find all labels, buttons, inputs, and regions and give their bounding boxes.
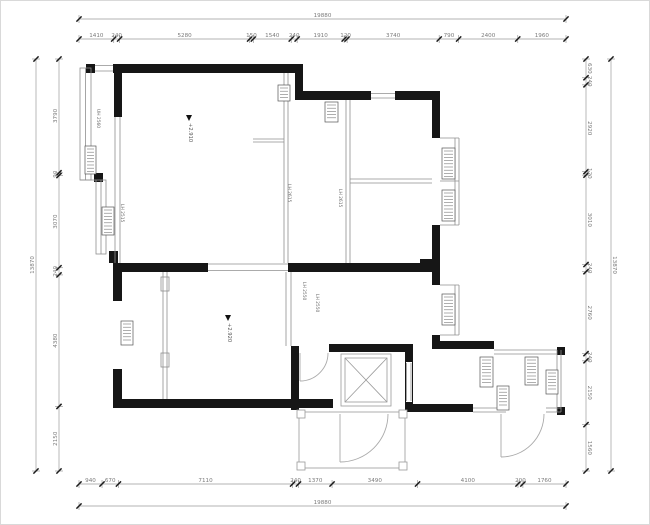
dim-segment-value: 3740 — [386, 33, 401, 39]
dimension-chain-bottom: 9406707110240137034904100200176019880 — [76, 478, 568, 510]
window-tag — [525, 357, 538, 385]
elevator-shaft — [341, 354, 391, 406]
dim-segment-value: 240 — [53, 266, 59, 277]
dimension-chain-right: 6302402920120301024027602402150156013870 — [582, 56, 617, 473]
window-tag — [121, 321, 133, 345]
dim-total-value: 19880 — [314, 500, 332, 506]
height-label: UH 2560 — [95, 109, 101, 128]
dim-segment-value: 940 — [85, 478, 96, 484]
window-tag — [480, 357, 493, 387]
dim-segment-value: 4380 — [53, 333, 59, 348]
floorplan-canvas: UH 2560LH 2515LH 2615LH 2615LH 2550LH 25… — [0, 0, 650, 525]
dim-segment-value: 240 — [586, 352, 592, 363]
height-label: LH 2515 — [119, 204, 125, 223]
dim-total-value: 13870 — [611, 256, 617, 274]
window-tag — [102, 207, 114, 235]
dimension-chain-left: 37909030702404380215013870 — [30, 56, 63, 473]
dim-segment-value: 670 — [105, 478, 116, 484]
window-tag — [497, 386, 509, 410]
elevator-x-icon — [345, 358, 387, 402]
height-label: LH 2550 — [314, 294, 320, 313]
balcony-door — [501, 414, 544, 457]
dim-segment-value: 2150 — [53, 431, 59, 446]
entry-door — [340, 414, 388, 462]
height-label: LH 2615 — [286, 184, 292, 203]
dim-segment-value: 1960 — [535, 33, 550, 39]
dim-segment-value: 240 — [290, 478, 301, 484]
dim-segment-value: 790 — [444, 33, 455, 39]
dim-segment-value: 2400 — [481, 33, 496, 39]
floorplan-drawing: UH 2560LH 2515LH 2615LH 2615LH 2550LH 25… — [1, 1, 650, 525]
window-tag — [278, 85, 290, 101]
window-tag — [546, 370, 558, 394]
dim-segment-value: 120 — [340, 33, 351, 39]
window-tag — [85, 146, 96, 174]
dim-segment-value: 240 — [586, 76, 592, 87]
level-marker: +2.920 — [226, 323, 232, 342]
dim-segment-value: 5280 — [177, 33, 192, 39]
hall-door — [300, 353, 328, 381]
dim-segment-value: 1410 — [89, 33, 104, 39]
height-label: LH 2615 — [337, 189, 343, 208]
dim-segment-value: 3010 — [586, 213, 592, 228]
dim-segment-value: 3790 — [53, 108, 59, 123]
level-marker: +2.910 — [187, 123, 193, 142]
dim-segment-value: 1910 — [314, 33, 329, 39]
dim-segment-value: 240 — [586, 263, 592, 274]
dim-segment-value: 240 — [289, 33, 300, 39]
window-tag — [442, 190, 455, 221]
dim-segment-value: 200 — [515, 478, 526, 484]
dimension-chain-top: 1410240528015015402401910120374079024001… — [76, 13, 568, 43]
dim-segment-value: 1560 — [586, 441, 592, 456]
dim-segment-value: 1370 — [308, 478, 323, 484]
dim-segment-value: 3490 — [368, 478, 383, 484]
height-label: LH 2550 — [301, 282, 307, 301]
dim-segment-value: 3070 — [53, 214, 59, 229]
dim-segment-value: 1540 — [265, 33, 280, 39]
dim-segment-value: 90 — [53, 170, 59, 178]
level-marker-flag-icon — [186, 115, 192, 121]
level-marker-flag-icon — [225, 315, 231, 321]
dim-segment-value: 1760 — [537, 478, 552, 484]
plan-text-labels: UH 2560LH 2515LH 2615LH 2615LH 2550LH 25… — [95, 109, 343, 342]
dim-total-value: 13870 — [30, 256, 36, 274]
dim-segment-value: 2760 — [586, 306, 592, 321]
window-tags — [85, 85, 558, 410]
dim-segment-value: 240 — [111, 33, 122, 39]
dim-segment-value: 2150 — [586, 386, 592, 401]
window-tag — [442, 294, 455, 325]
dim-segment-value: 120 — [586, 168, 592, 179]
dim-segment-value: 7110 — [198, 478, 213, 484]
dim-segment-value: 4100 — [461, 478, 476, 484]
window-tag — [325, 102, 338, 122]
dim-total-value: 19880 — [314, 13, 332, 19]
dim-segment-value: 150 — [246, 33, 257, 39]
dim-segment-value: 2920 — [586, 121, 592, 136]
window-tag — [442, 148, 455, 179]
dim-segment-value: 630 — [586, 63, 592, 74]
